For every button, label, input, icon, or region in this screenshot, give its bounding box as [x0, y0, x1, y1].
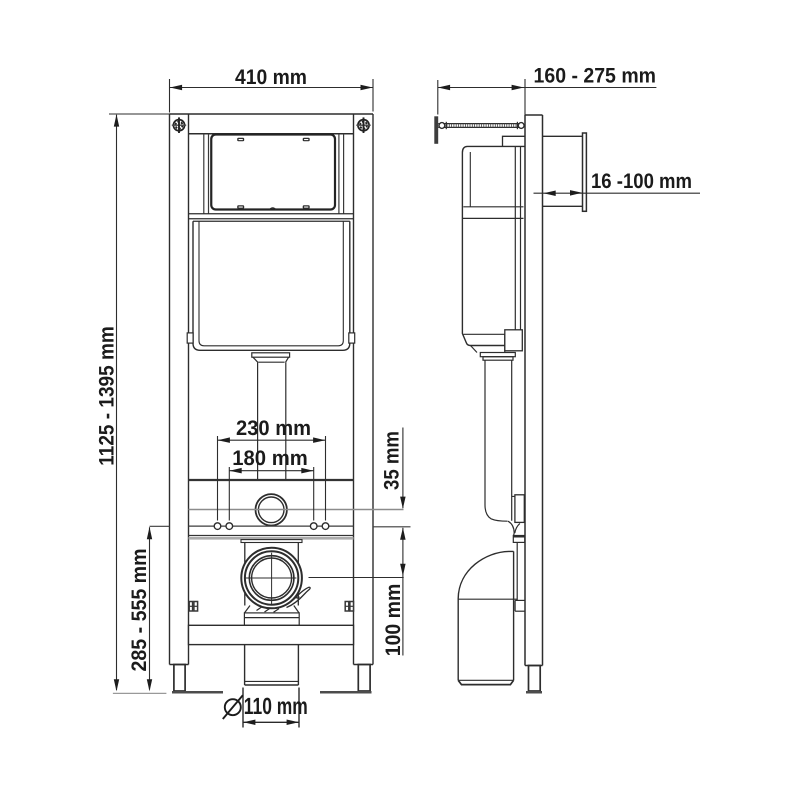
svg-text:410 mm: 410 mm — [235, 66, 307, 89]
svg-text:35 mm: 35 mm — [381, 431, 404, 490]
svg-text:16 -100 mm: 16 -100 mm — [591, 170, 692, 193]
svg-text:230 mm: 230 mm — [236, 417, 311, 440]
svg-text:100 mm: 100 mm — [382, 584, 405, 657]
svg-text:1125 - 1395 mm: 1125 - 1395 mm — [95, 326, 118, 466]
svg-text:160 - 275 mm: 160 - 275 mm — [534, 65, 657, 88]
svg-text:180 mm: 180 mm — [232, 447, 308, 470]
svg-text:110 mm: 110 mm — [244, 693, 308, 719]
svg-text:285 - 555 mm: 285 - 555 mm — [128, 549, 151, 672]
